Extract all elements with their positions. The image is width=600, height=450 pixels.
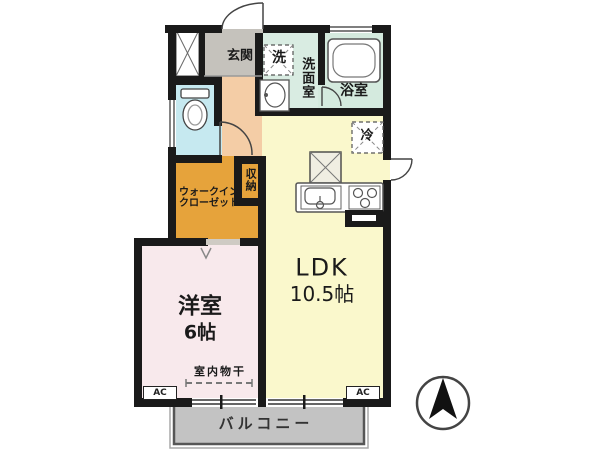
label-ldk-size: 10.5帖 (290, 283, 355, 305)
counter-box-icon (310, 152, 341, 183)
north-arrow-icon (417, 377, 469, 429)
label-storage: 収納 (244, 168, 256, 192)
label-genkan: 玄関 (227, 50, 253, 65)
toilet-icon (181, 89, 209, 130)
label-western-room: 洋室 (178, 296, 222, 321)
bathtub-icon (328, 39, 380, 82)
label-wic-line2: クローゼット (179, 198, 239, 209)
kitchen-side-window-arc (391, 159, 412, 180)
label-indoor-drying: 室内物干 (194, 366, 246, 378)
label-fridge: 冷 (360, 130, 373, 145)
floor-plan: 玄関 洗 洗面室 浴室 冷 収納 ウォークイン クローゼット LDK 10.5帖… (0, 0, 600, 450)
stove-icon (349, 186, 380, 209)
kitchen-base-cabinet (345, 210, 383, 227)
label-western-size: 6帖 (184, 322, 216, 343)
label-bath: 浴室 (340, 84, 368, 100)
bath-top-window (330, 25, 372, 33)
label-washer: 洗 (272, 51, 286, 67)
toilet-side-window (168, 100, 176, 147)
label-ldk: LDK (295, 255, 349, 282)
kitchen-sink-icon (301, 186, 341, 209)
vanity-sink-icon (260, 80, 289, 111)
ac-unit-right: AC (346, 386, 380, 400)
label-balcony: バルコニー (219, 416, 314, 433)
entrance-door-arc (222, 3, 263, 29)
label-wic-line1: ウォークイン (179, 187, 239, 198)
label-walk-in-closet: ウォークイン クローゼット (179, 187, 239, 209)
shoe-cabinet-icon (176, 30, 199, 76)
label-washroom: 洗面室 (299, 57, 314, 99)
ac-unit-left: AC (143, 386, 177, 400)
